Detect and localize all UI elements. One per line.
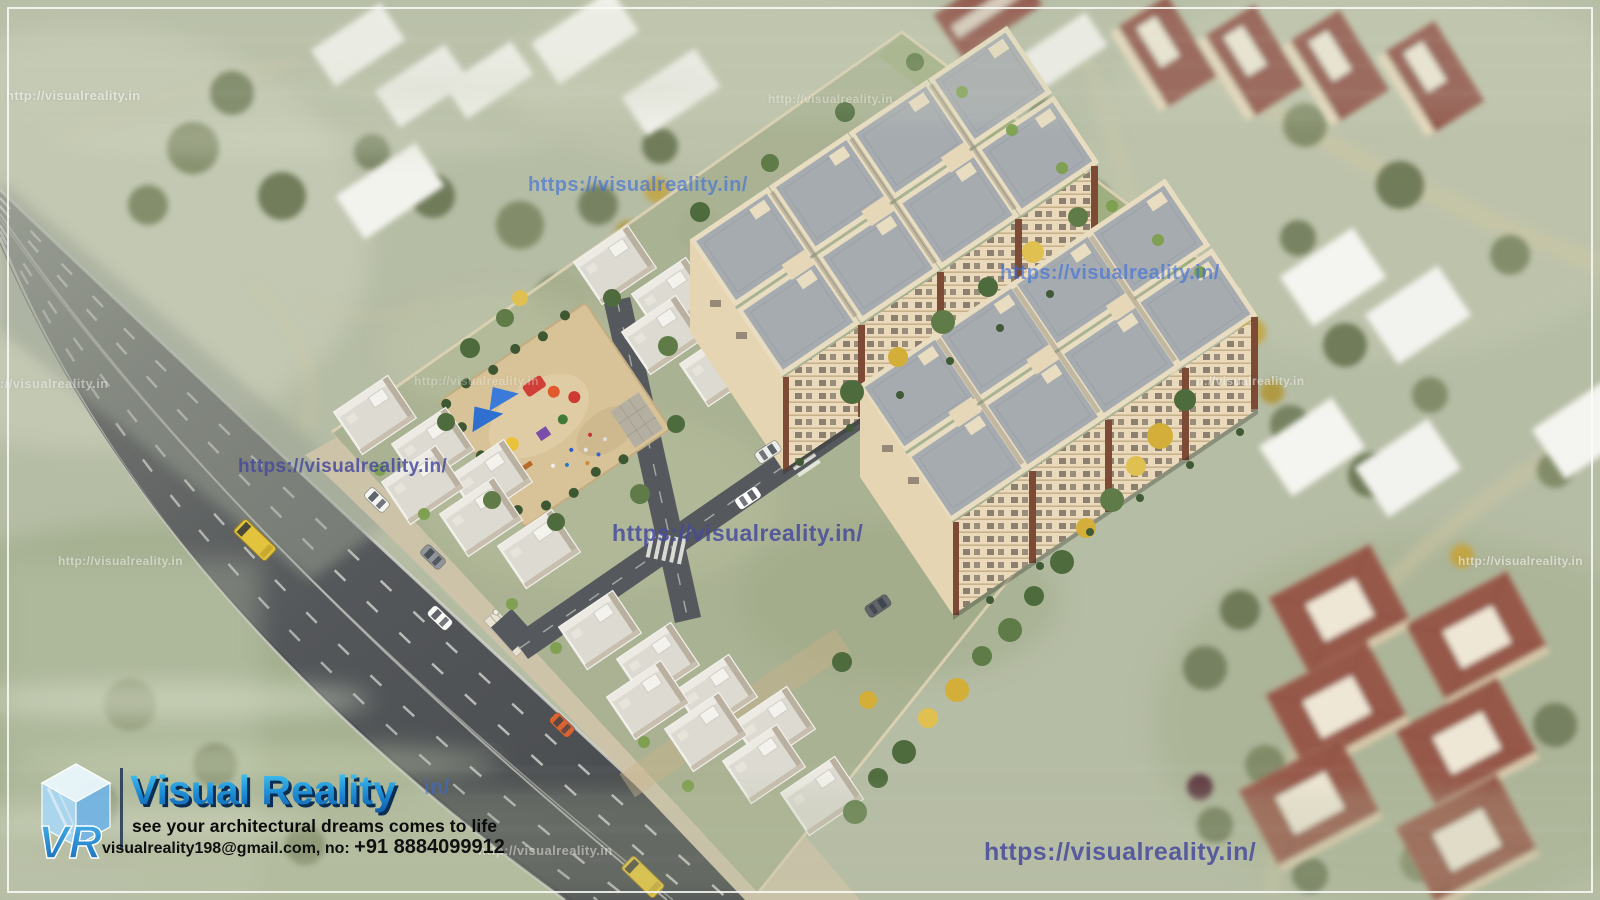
brand-tagline: see your architectural dreams comes to l… <box>132 816 497 837</box>
contact-phone: +91 8884099912 <box>354 836 505 858</box>
brand-contact: visualreality198@gmail.com, no: +91 8884… <box>102 836 505 859</box>
brand-title-text: Visual Reality <box>130 767 396 813</box>
contact-email: visualreality198@gmail.com, no: <box>102 840 354 857</box>
vr-monogram: VR <box>38 816 102 864</box>
brand-logo: VR Visual Reality Visual Reality see you… <box>20 756 510 874</box>
brand-title: Visual Reality Visual Reality <box>130 766 480 818</box>
architectural-render-image: http://visualreality.in http://visualrea… <box>0 0 1600 900</box>
